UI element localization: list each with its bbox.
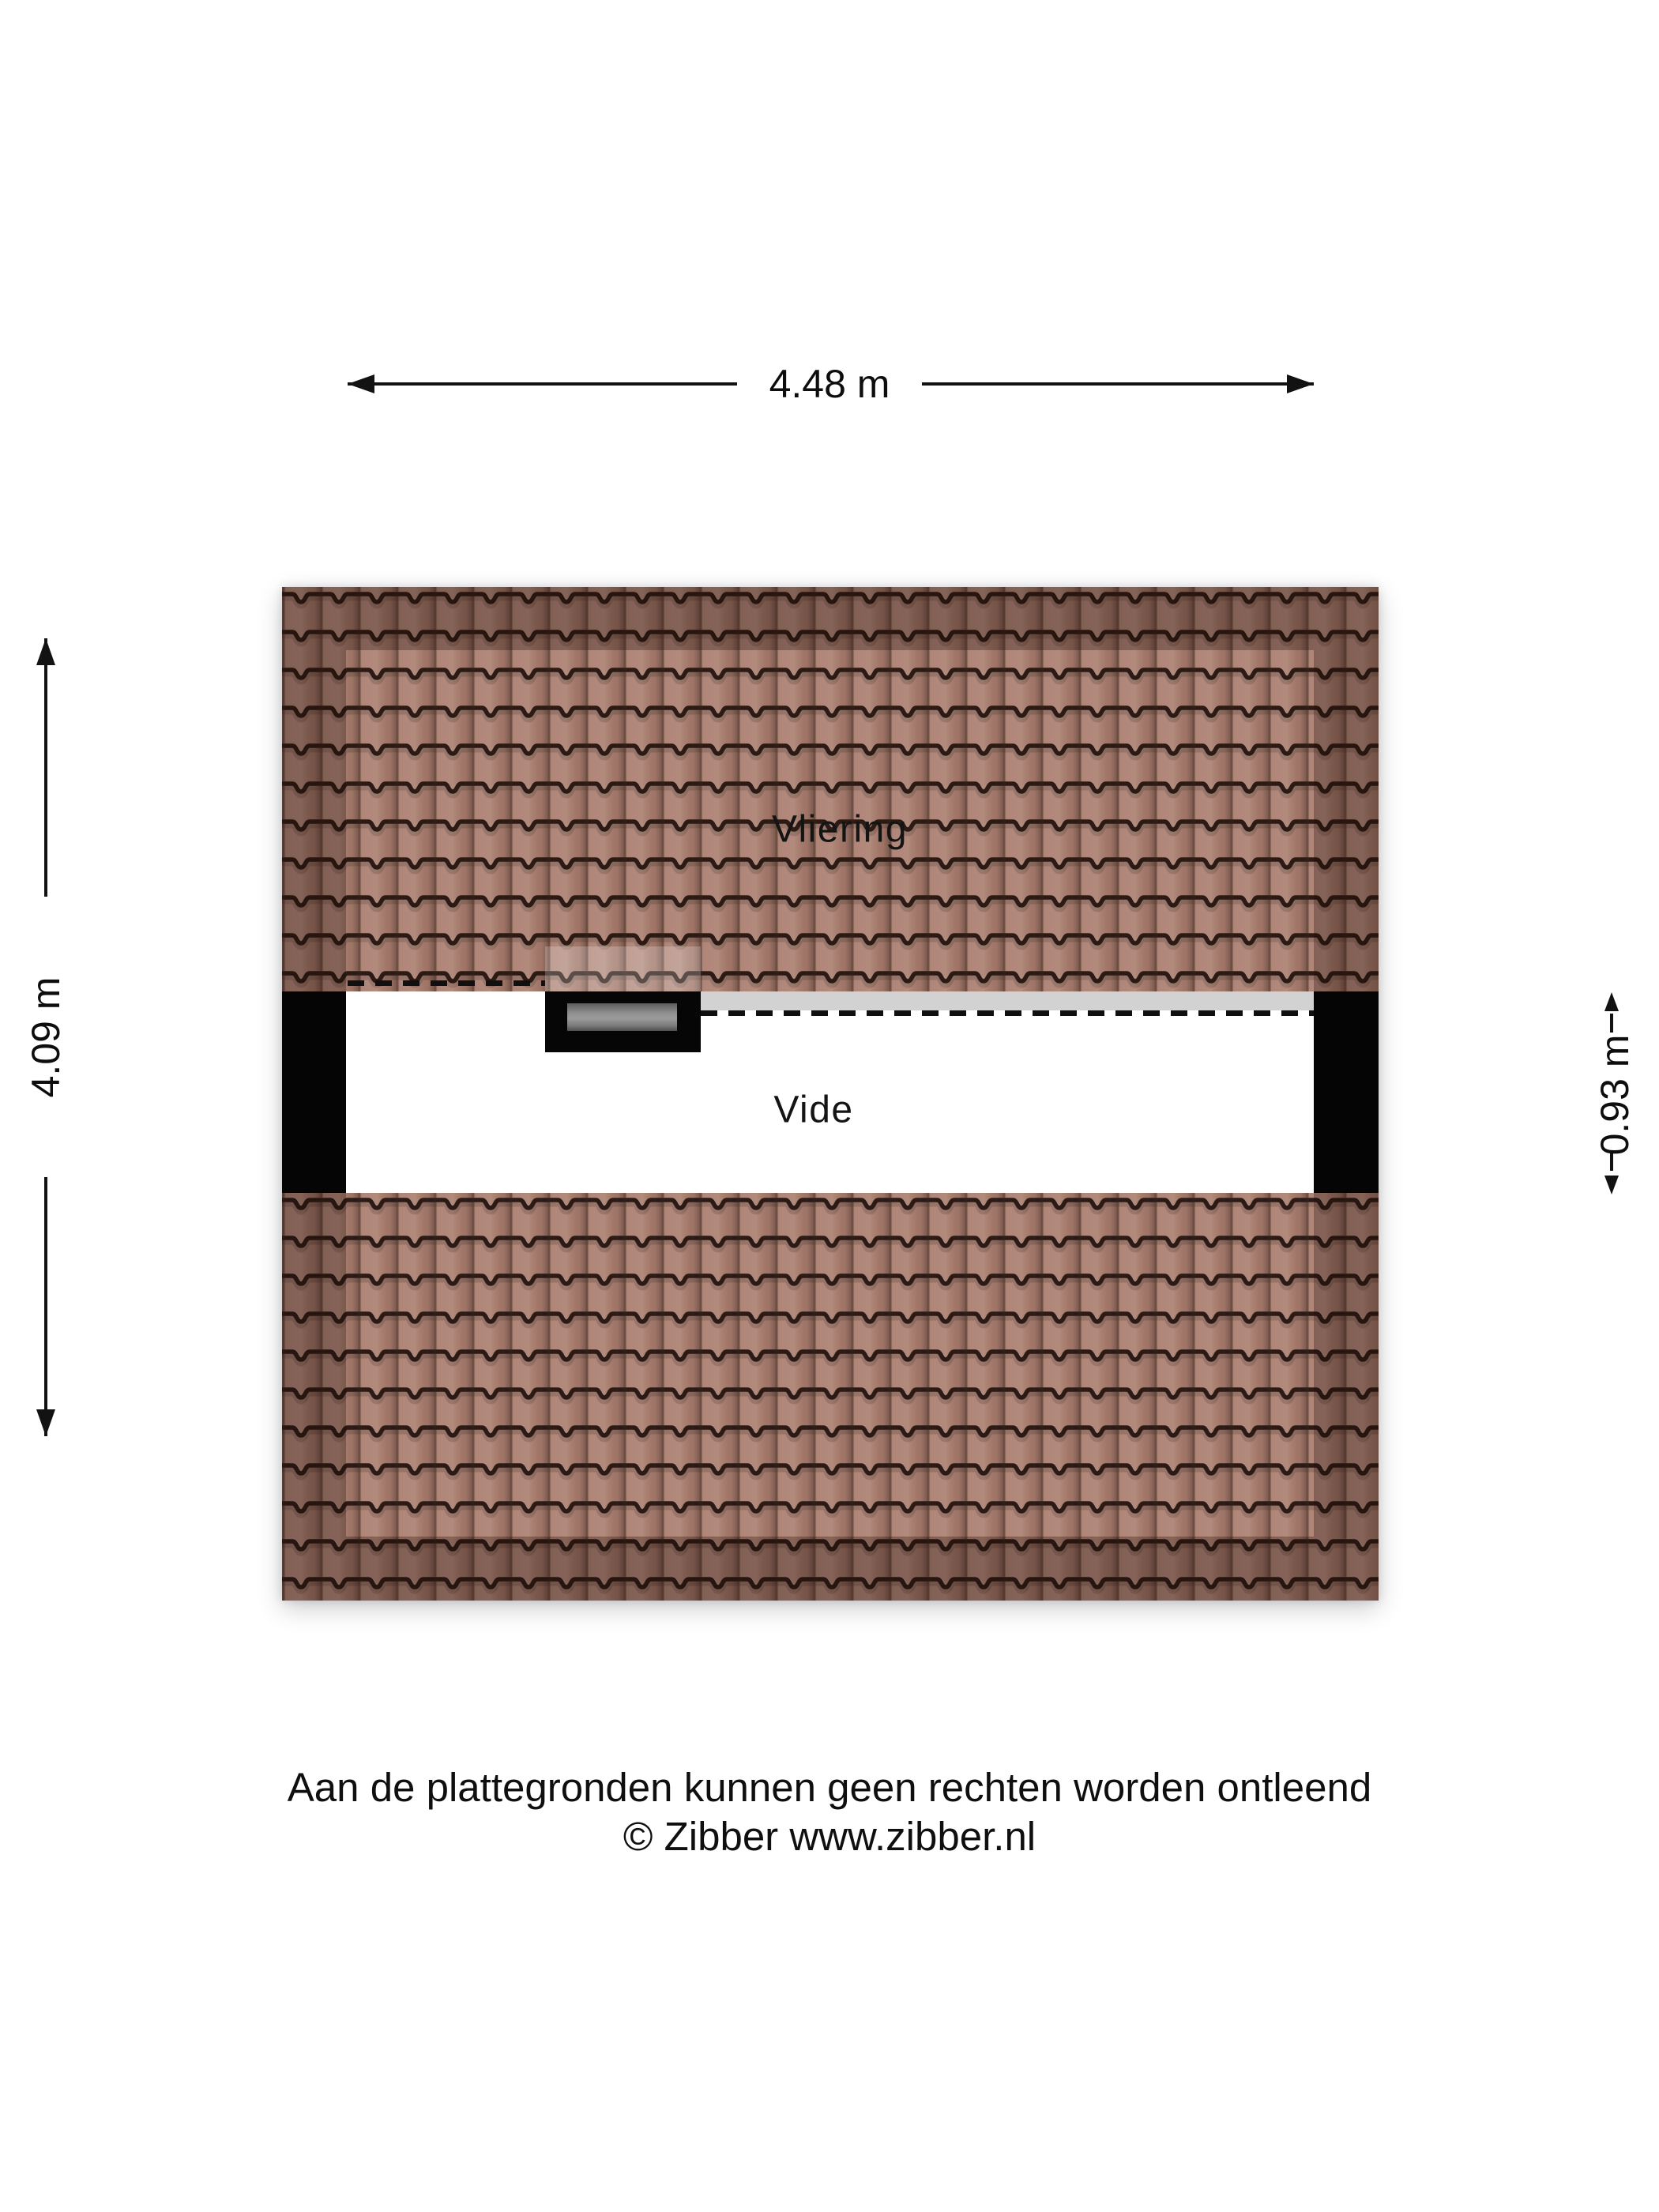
skylight-window bbox=[545, 991, 701, 1052]
floor-edge-gray-band bbox=[701, 991, 1314, 1010]
arrowhead-up-small-icon bbox=[1604, 992, 1619, 1011]
arrowhead-up-icon bbox=[36, 638, 55, 665]
opening-dashed-line-right bbox=[701, 1010, 1314, 1016]
room-label-vide: Vide bbox=[773, 1089, 853, 1132]
wall-bar-right bbox=[1314, 991, 1379, 1193]
room-label-vliering: Vliering bbox=[772, 808, 908, 852]
dim-height-label: 4.09 m bbox=[23, 977, 69, 1098]
footer-disclaimer: Aan de plattegronden kunnen geen rechten… bbox=[0, 1763, 1659, 1812]
dim-height-line-bottom bbox=[44, 1177, 47, 1436]
footer: Aan de plattegronden kunnen geen rechten… bbox=[0, 1763, 1659, 1861]
floorplan: Vliering Vide bbox=[282, 587, 1379, 1601]
skylight-glow bbox=[545, 946, 701, 992]
roof-bottom-tiles bbox=[282, 1193, 1379, 1601]
wall-bar-left bbox=[282, 991, 346, 1193]
arrowhead-left-icon bbox=[348, 374, 374, 393]
dim-width-label: 4.48 m bbox=[769, 361, 890, 407]
opening-dashed-line-left bbox=[348, 980, 545, 986]
roof-top-tiles bbox=[282, 587, 1379, 991]
dim-vide-stub-top bbox=[1610, 1014, 1613, 1033]
dim-height-line-top bbox=[44, 638, 47, 897]
arrowhead-down-small-icon bbox=[1604, 1176, 1619, 1194]
skylight-pane bbox=[567, 1003, 677, 1031]
arrowhead-right-icon bbox=[1287, 374, 1314, 393]
arrowhead-down-icon bbox=[36, 1409, 55, 1436]
floorplan-page: 4.48 m 4.09 m 0.93 m bbox=[0, 0, 1659, 2212]
dim-width-line-right bbox=[922, 382, 1314, 386]
footer-copyright: © Zibber www.zibber.nl bbox=[0, 1812, 1659, 1861]
dim-width-line-left bbox=[348, 382, 737, 386]
dim-vide-height-label: 0.93 m bbox=[1592, 1035, 1638, 1156]
